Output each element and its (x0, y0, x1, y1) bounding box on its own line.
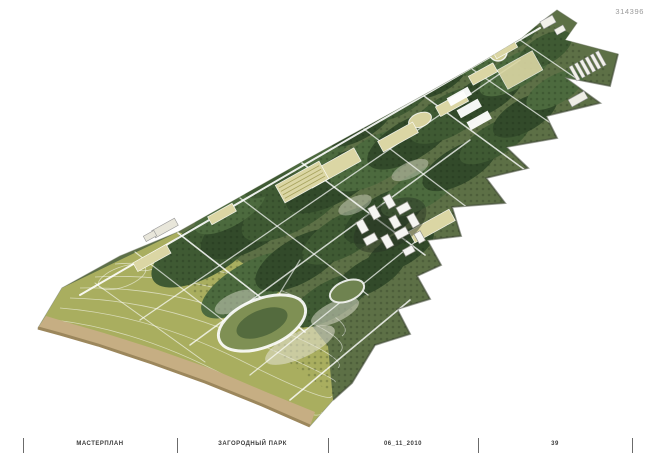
masterplan-illustration (0, 0, 650, 459)
presentation-sheet: 314396 (0, 0, 650, 459)
